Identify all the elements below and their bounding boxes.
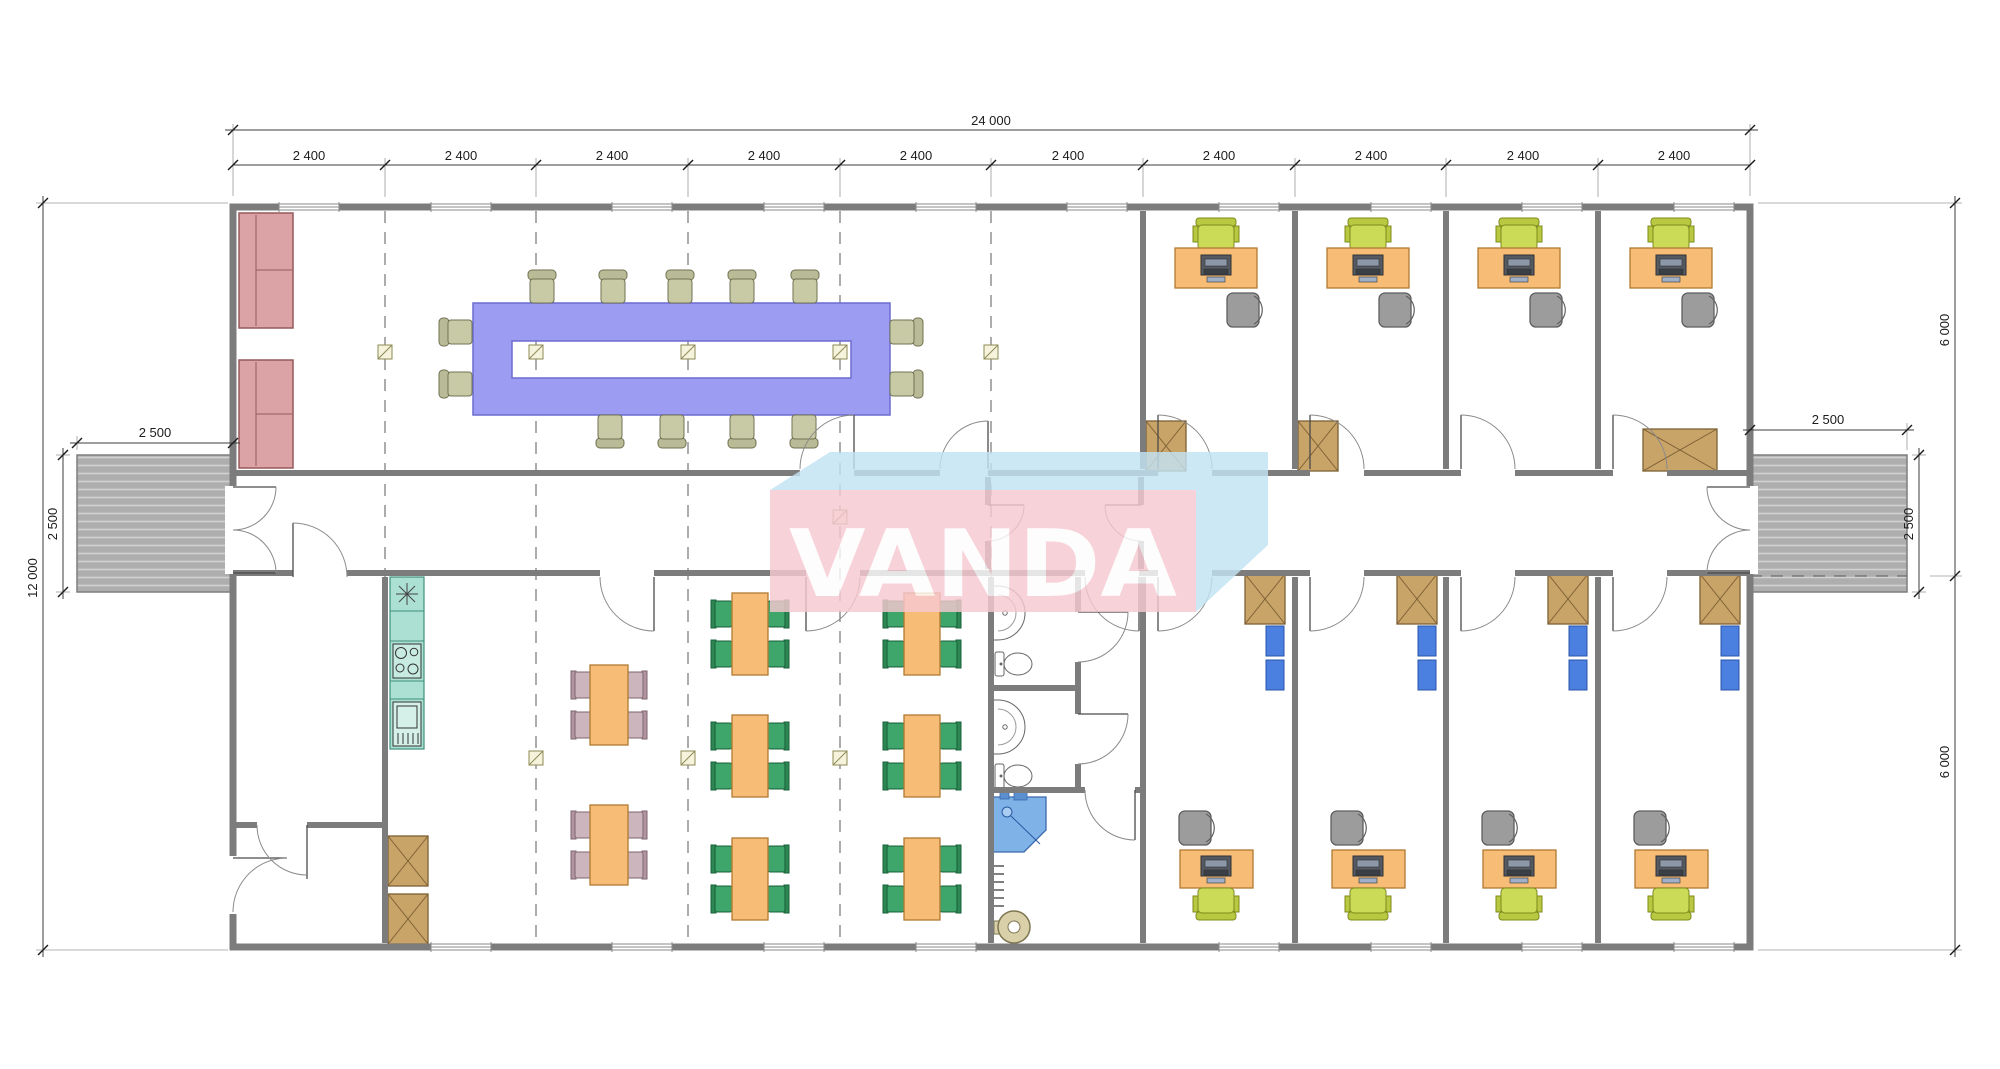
offices-top (1146, 218, 1717, 471)
watermark-logo-text: VANDA (789, 510, 1177, 618)
svg-text:2 400: 2 400 (445, 148, 478, 163)
svg-text:2 500: 2 500 (45, 508, 60, 541)
shower-icon (993, 792, 1046, 852)
cabinet-icon (1245, 574, 1740, 624)
svg-text:2 400: 2 400 (1052, 148, 1085, 163)
canteen (571, 593, 961, 920)
sink-icon (393, 702, 421, 746)
watermark: VANDA (770, 452, 1268, 618)
stove-icon (393, 644, 421, 678)
water-heater-icon (994, 911, 1030, 943)
door-opening (225, 856, 240, 914)
svg-text:2 400: 2 400 (1658, 148, 1691, 163)
cabinet-icon (1643, 429, 1717, 471)
cabinet-icon (388, 836, 428, 944)
porch-left (77, 455, 233, 592)
svg-text:6 000: 6 000 (1937, 746, 1952, 779)
porch-right (1750, 455, 1907, 592)
svg-text:6 000: 6 000 (1937, 314, 1952, 347)
svg-text:12 000: 12 000 (25, 558, 40, 598)
svg-text:2 400: 2 400 (293, 148, 326, 163)
dim-label: 24 000 (971, 113, 1011, 128)
svg-text:2 400: 2 400 (748, 148, 781, 163)
sanitary-rooms (990, 586, 1046, 943)
svg-text:2 400: 2 400 (1507, 148, 1540, 163)
svg-text:2 500: 2 500 (139, 425, 172, 440)
floor-plan-canvas: 24 000 2 400 2 400 2 400 2 400 2 400 2 (0, 0, 2000, 1069)
kitchen (388, 577, 428, 944)
svg-text:2 400: 2 400 (596, 148, 629, 163)
floor-plan-page: 24 000 2 400 2 400 2 400 2 400 2 400 2 (0, 0, 2000, 1069)
svg-text:2 400: 2 400 (1355, 148, 1388, 163)
lamp-icon (396, 583, 418, 605)
wc-icon (995, 652, 1032, 676)
sofa-icon (239, 360, 293, 468)
wc-icon (995, 764, 1032, 788)
svg-text:2 500: 2 500 (1901, 508, 1916, 541)
meeting-room (239, 213, 923, 468)
svg-text:2 400: 2 400 (1203, 148, 1236, 163)
dim-modules: 2 400 2 400 2 400 2 400 2 400 2 400 2 40… (228, 148, 1755, 197)
svg-text:2 500: 2 500 (1812, 412, 1845, 427)
svg-text:2 400: 2 400 (900, 148, 933, 163)
shelf-icon (1266, 626, 1739, 690)
sofa-icon (239, 213, 293, 328)
sink-icon (992, 700, 1025, 754)
offices-bottom (1179, 574, 1740, 920)
